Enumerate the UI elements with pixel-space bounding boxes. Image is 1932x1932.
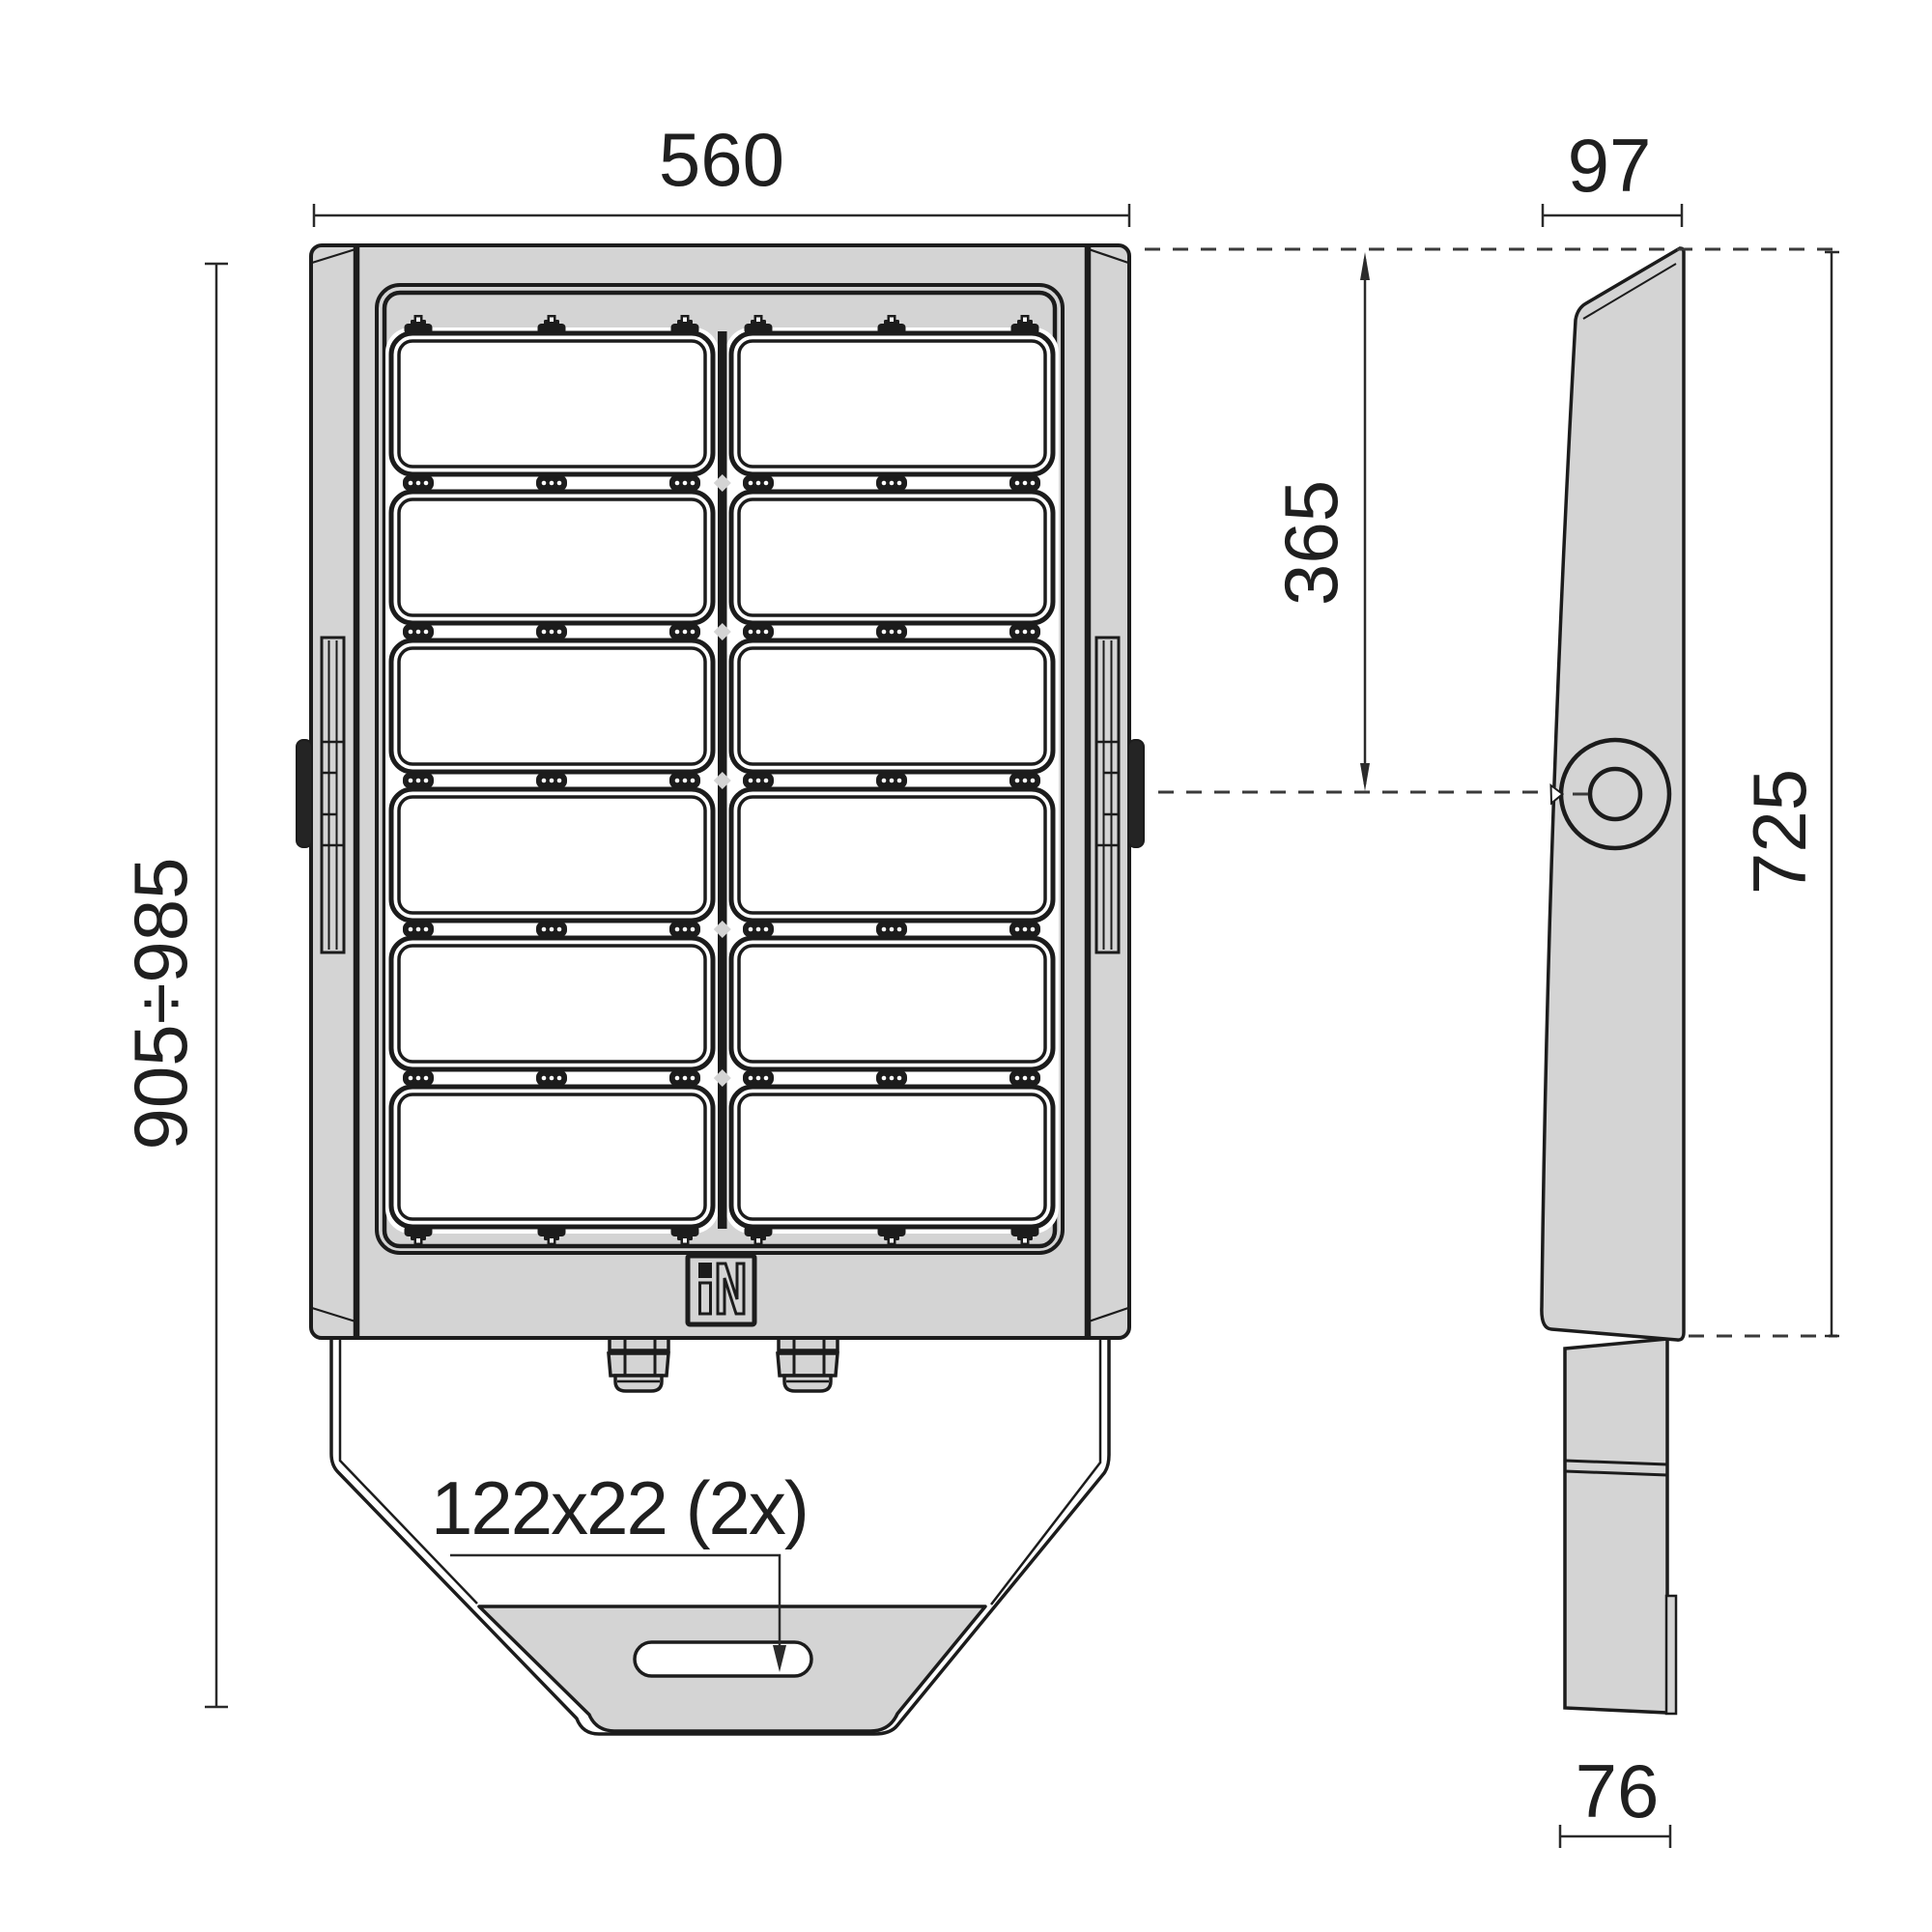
svg-text:905÷985: 905÷985 <box>118 857 203 1150</box>
svg-text:725: 725 <box>1737 769 1822 895</box>
svg-text:122x22 (2x): 122x22 (2x) <box>431 1465 808 1550</box>
svg-text:560: 560 <box>659 117 784 202</box>
svg-text:97: 97 <box>1568 123 1652 208</box>
svg-text:76: 76 <box>1576 1748 1660 1833</box>
svg-text:365: 365 <box>1268 480 1353 606</box>
